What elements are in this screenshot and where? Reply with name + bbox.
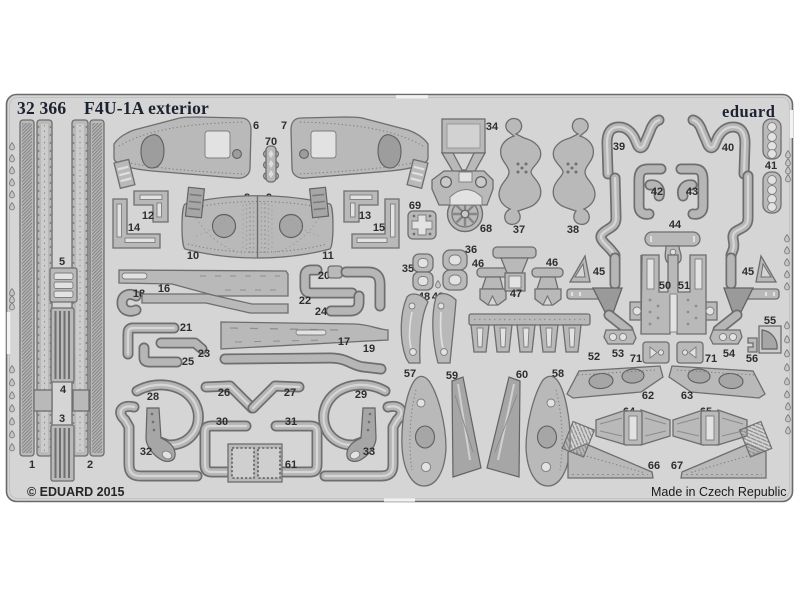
svg-text:56: 56 [746,353,758,365]
svg-text:45: 45 [742,266,754,278]
svg-text:32: 32 [140,446,152,458]
svg-text:31: 31 [285,416,297,428]
svg-text:39: 39 [613,141,625,153]
svg-text:61: 61 [285,459,297,471]
svg-text:63: 63 [681,390,693,402]
svg-text:62: 62 [642,390,654,402]
svg-text:46: 46 [546,257,558,269]
svg-text:37: 37 [513,224,525,236]
svg-text:26: 26 [218,387,230,399]
svg-text:12: 12 [142,210,154,222]
svg-text:32 366 F4U-1A exterior: 32 366 F4U-1A exterior [17,98,209,118]
svg-text:29: 29 [355,389,367,401]
svg-text:7: 7 [281,120,287,132]
svg-text:24: 24 [315,306,328,318]
svg-text:3: 3 [59,413,65,425]
svg-text:71: 71 [630,353,642,365]
svg-text:1: 1 [29,459,35,471]
svg-text:23: 23 [198,348,210,360]
svg-text:eduard: eduard [722,102,775,121]
svg-text:42: 42 [651,186,663,198]
svg-text:55: 55 [764,315,776,327]
svg-text:54: 54 [723,348,736,360]
svg-text:5: 5 [59,256,65,268]
svg-text:© EDUARD 2015: © EDUARD 2015 [27,485,124,499]
svg-text:57: 57 [404,368,416,380]
svg-text:28: 28 [147,391,159,403]
svg-text:38: 38 [567,224,579,236]
svg-text:19: 19 [363,343,375,355]
svg-text:33: 33 [363,446,375,458]
svg-text:45: 45 [593,266,605,278]
svg-text:Made in Czech Republic: Made in Czech Republic [651,485,787,499]
svg-text:66: 66 [648,460,660,472]
svg-text:14: 14 [128,222,141,234]
svg-text:44: 44 [669,219,682,231]
svg-text:47: 47 [510,288,522,300]
svg-text:25: 25 [182,356,194,368]
svg-text:27: 27 [284,387,296,399]
svg-text:67: 67 [671,460,683,472]
svg-text:30: 30 [216,416,228,428]
svg-text:71: 71 [705,353,717,365]
svg-text:11: 11 [322,250,334,262]
svg-text:22: 22 [299,295,311,307]
svg-text:52: 52 [588,351,600,363]
svg-text:53: 53 [612,348,624,360]
svg-text:50: 50 [659,280,671,292]
svg-text:60: 60 [516,369,528,381]
svg-text:4: 4 [60,384,67,396]
svg-text:10: 10 [187,250,199,262]
svg-text:17: 17 [338,336,350,348]
svg-text:2: 2 [87,459,93,471]
svg-text:16: 16 [158,283,170,295]
svg-text:6: 6 [253,120,259,132]
svg-text:40: 40 [722,142,734,154]
svg-text:13: 13 [359,210,371,222]
svg-text:41: 41 [765,160,777,172]
svg-text:15: 15 [373,222,385,234]
svg-text:68: 68 [480,223,492,235]
svg-text:35: 35 [402,263,414,275]
svg-text:70: 70 [265,136,277,148]
svg-text:51: 51 [678,280,690,292]
svg-text:43: 43 [686,186,698,198]
svg-text:21: 21 [180,322,192,334]
svg-text:34: 34 [486,121,499,133]
svg-text:69: 69 [409,200,421,212]
